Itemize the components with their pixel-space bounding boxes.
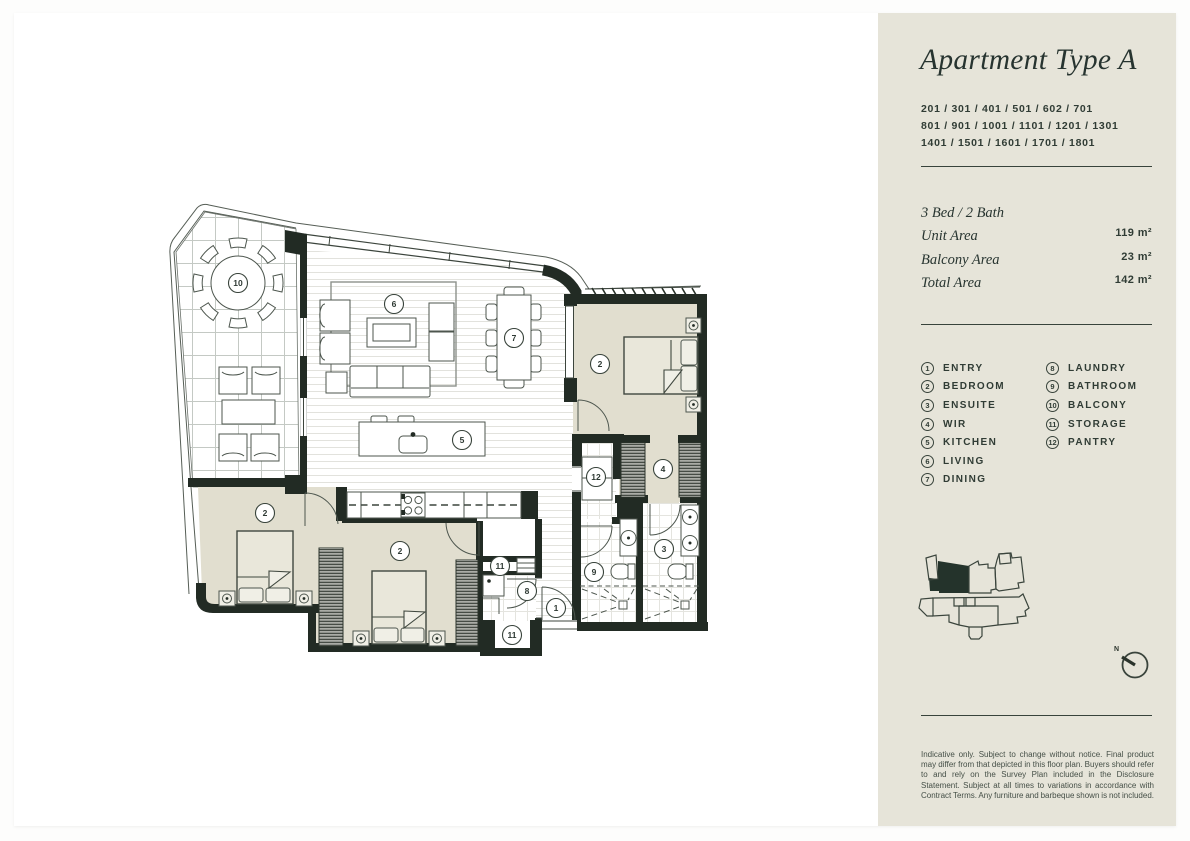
svg-text:10: 10 <box>233 278 243 288</box>
svg-text:1: 1 <box>554 603 559 613</box>
svg-text:2: 2 <box>263 508 268 518</box>
svg-text:6: 6 <box>392 299 397 309</box>
svg-text:12: 12 <box>591 472 601 482</box>
svg-text:9: 9 <box>592 567 597 577</box>
svg-text:N: N <box>1114 646 1119 653</box>
svg-text:8: 8 <box>525 586 530 596</box>
svg-text:11: 11 <box>508 630 517 640</box>
svg-text:4: 4 <box>661 464 666 474</box>
svg-text:11: 11 <box>496 561 505 571</box>
svg-text:3: 3 <box>662 544 667 554</box>
svg-text:2: 2 <box>398 546 403 556</box>
svg-text:7: 7 <box>512 333 517 343</box>
svg-text:2: 2 <box>598 359 603 369</box>
svg-text:5: 5 <box>460 435 465 445</box>
